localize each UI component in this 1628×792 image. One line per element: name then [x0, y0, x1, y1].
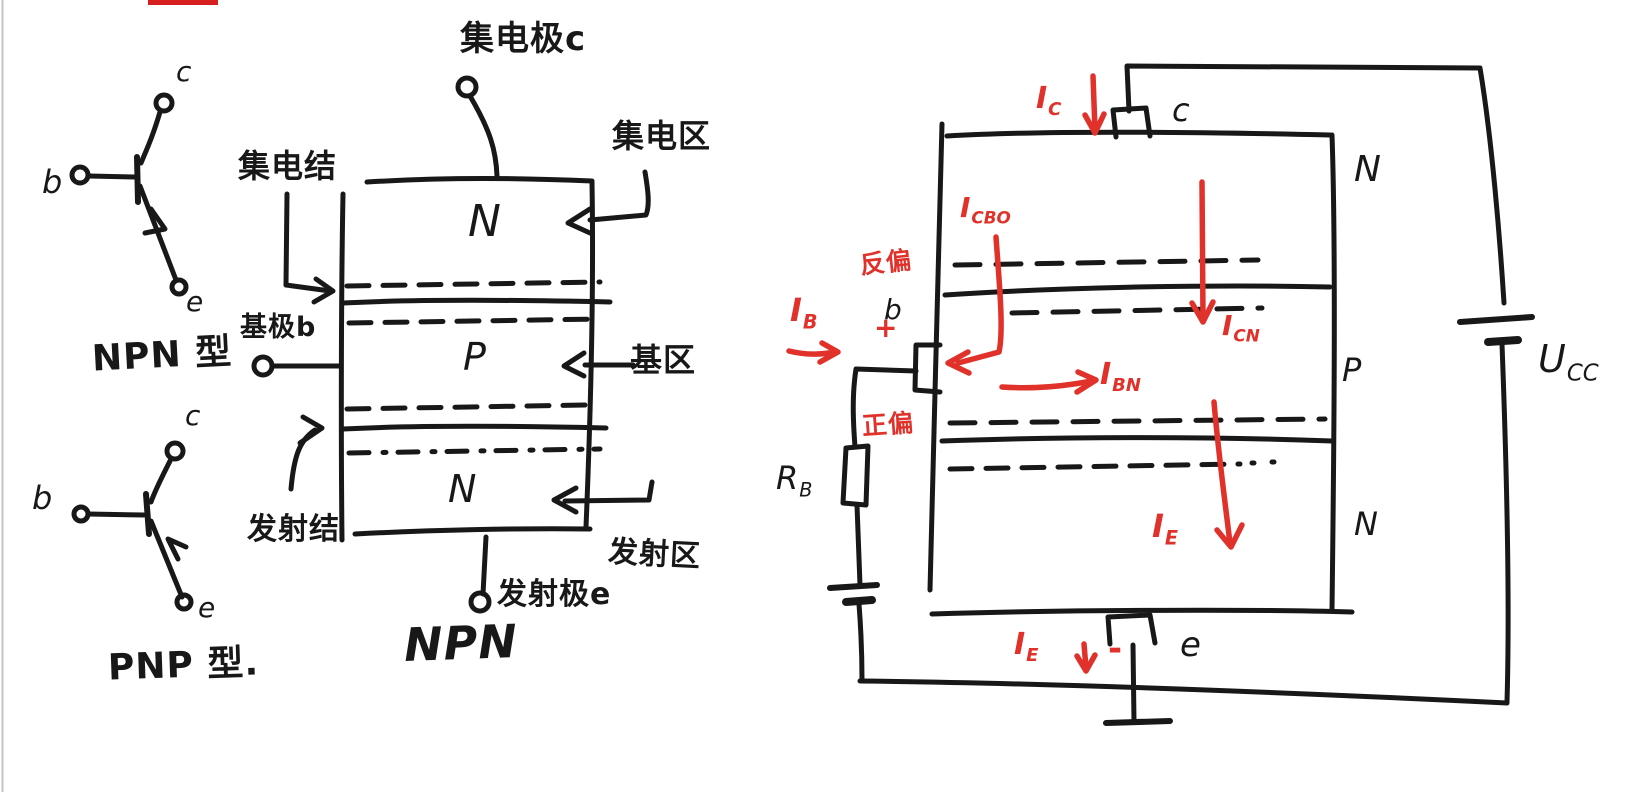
pnp-emitter-terminal-dot: [177, 595, 191, 609]
pnp-collector-terminal-dot: [167, 443, 183, 459]
structure-caption: NPN: [403, 618, 518, 668]
npn-emitter-terminal-dot: [172, 280, 186, 294]
structure-region-bottom-label: N: [448, 470, 477, 508]
icn-arrow: [1202, 182, 1203, 318]
pnp-symbol-b-label: b: [32, 482, 53, 514]
icbo-current-label: ICBO: [960, 194, 1011, 226]
collector-junction-label: 集电结: [238, 150, 337, 182]
emitter-region-pointer: [565, 482, 652, 501]
ic-arrow: [1093, 76, 1095, 130]
forward-bias-label: 正偏: [861, 410, 915, 439]
pnp-type-label: PNP 型.: [107, 645, 259, 686]
structure-collector-terminal-dot: [458, 78, 476, 96]
sketch-canvas: c b e NPN 型 c b e PNP 型. 集电极c 集电区 集电结 基极…: [0, 0, 1628, 792]
structure-base-terminal-dot: [254, 357, 272, 375]
pnp-symbol-e-label: e: [198, 594, 216, 622]
ibn-current-label: IBN: [1100, 360, 1141, 395]
ib-arrow: [789, 351, 835, 354]
icn-current-label: ICN: [1222, 312, 1260, 344]
npn-collector-terminal-dot: [156, 95, 172, 111]
emitter-region-label: 发射区: [607, 538, 701, 573]
reverse-bias-label: 反偏: [859, 247, 913, 277]
supply-battery-long-plate: [1460, 317, 1532, 322]
bottom-rail-wire: [860, 681, 1507, 703]
icbo-arrow: [958, 237, 1001, 363]
collector-region-pointer: [590, 172, 648, 220]
base-resistor-label: RB: [776, 462, 812, 500]
collector-junction-pointer: [286, 194, 330, 291]
base-region-label: 基区: [630, 344, 696, 376]
pnp-symbol-c-label: c: [185, 402, 201, 430]
circuit-region-bottom-label: N: [1354, 508, 1379, 540]
pnp-symbol-sketch: [74, 443, 191, 609]
ib-current-label: IB: [790, 294, 818, 332]
red-top-mark: [148, 0, 218, 5]
emitter-terminal-label: 发射极e: [497, 580, 611, 610]
circuit-c-label: c: [1172, 94, 1191, 126]
ie-inner-current-label: IE: [1152, 510, 1178, 548]
emitter-minus-sign: -: [1108, 632, 1123, 666]
base-resistor-body: [843, 446, 868, 505]
supply-voltage-label: UCC: [1538, 340, 1599, 385]
emitter-junction-label: 发射结: [247, 515, 340, 545]
circuit-e-label: e: [1180, 628, 1202, 662]
collector-junction-line: [343, 300, 610, 303]
emitter-junction-line: [343, 426, 606, 429]
npn-base-terminal-dot: [72, 167, 88, 183]
circuit-region-middle-label: P: [1342, 354, 1362, 386]
structure-region-middle-label: P: [463, 338, 487, 376]
structure-emitter-terminal-dot: [471, 593, 489, 611]
collector-region-label: 集电区: [612, 120, 711, 152]
ie-inner-arrow: [1214, 402, 1230, 543]
supply-battery-short-plate: [1488, 340, 1518, 342]
base-battery-long-plate: [830, 585, 877, 588]
npn-symbol-e-label: e: [186, 288, 204, 316]
npn-symbol-sketch: [72, 95, 186, 294]
base-plus-sign: +: [874, 314, 898, 342]
npn-symbol-c-label: c: [176, 58, 192, 86]
collector-terminal-label: 集电极c: [460, 22, 586, 56]
ic-current-label: IC: [1036, 84, 1061, 119]
circuit-region-top-label: N: [1354, 152, 1382, 188]
pnp-emitter-arrowhead: [168, 539, 186, 559]
npn-type-label: NPN 型: [91, 334, 233, 377]
npn-symbol-b-label: b: [42, 166, 63, 198]
ie-bottom-current-label: IE: [1014, 630, 1038, 665]
structure-region-top-label: N: [468, 200, 502, 244]
ibn-arrow: [1002, 381, 1092, 388]
base-terminal-label: 基极b: [240, 314, 316, 341]
